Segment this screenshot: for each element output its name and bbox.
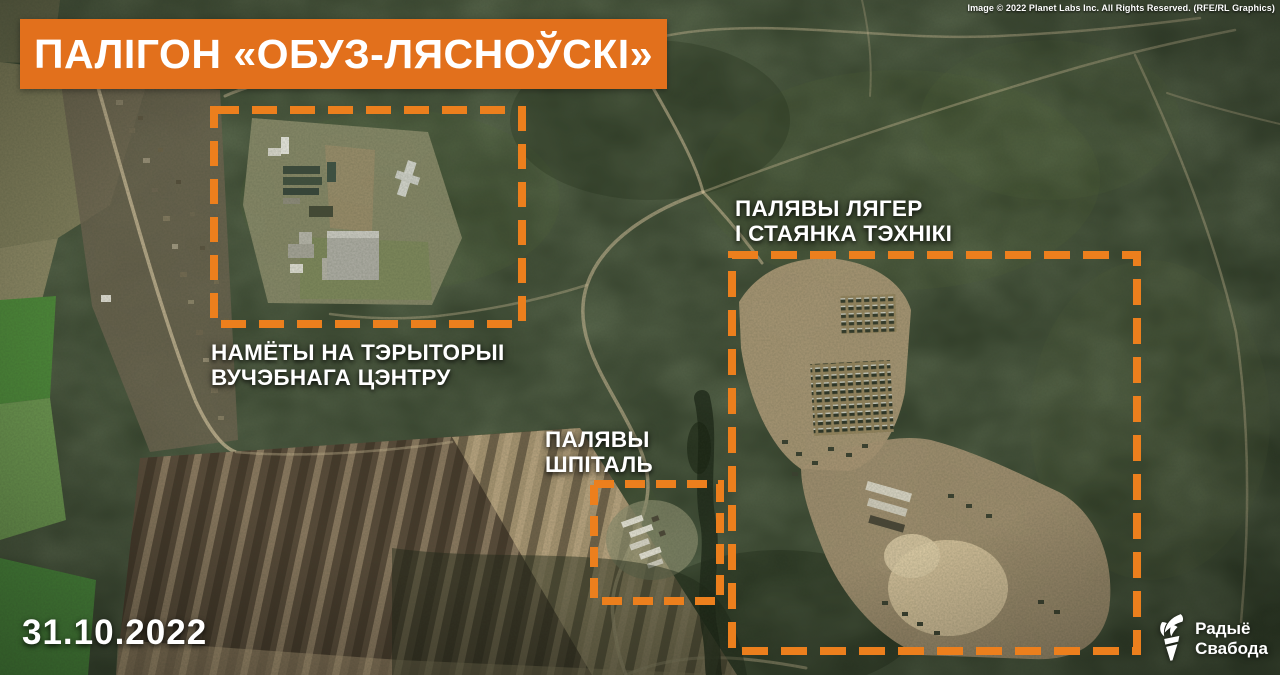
- logo-line-2: Свабода: [1195, 639, 1268, 659]
- logo-line-1: Радыё: [1195, 619, 1268, 639]
- credit-line: Image © 2022 Planet Labs Inc. All Rights…: [967, 3, 1275, 13]
- label-field-camp: ПАЛЯВЫ ЛЯГЕР І СТАЯНКА ТЭХНІКІ: [735, 197, 952, 247]
- infographic-root: ПАЛІГОН «ОБУЗ-ЛЯСНОЎСКІ» Image © 2022 Pl…: [0, 0, 1280, 675]
- title-banner: ПАЛІГОН «ОБУЗ-ЛЯСНОЎСКІ»: [20, 19, 667, 89]
- image-grain: [0, 0, 1280, 675]
- date-label: 31.10.2022: [22, 613, 207, 653]
- label-training-center: НАМЁТЫ НА ТЭРЫТОРЫІ ВУЧЭБНАГА ЦЭНТРУ: [211, 341, 505, 391]
- label-field-hospital: ПАЛЯВЫ ШПІТАЛЬ: [545, 428, 653, 478]
- logo-text: Радыё Свабода: [1195, 619, 1268, 660]
- radio-svaboda-logo: Радыё Свабода: [1154, 613, 1268, 665]
- satellite-image: [0, 0, 1280, 675]
- page-title: ПАЛІГОН «ОБУЗ-ЛЯСНОЎСКІ»: [34, 31, 653, 78]
- torch-icon: [1154, 613, 1186, 665]
